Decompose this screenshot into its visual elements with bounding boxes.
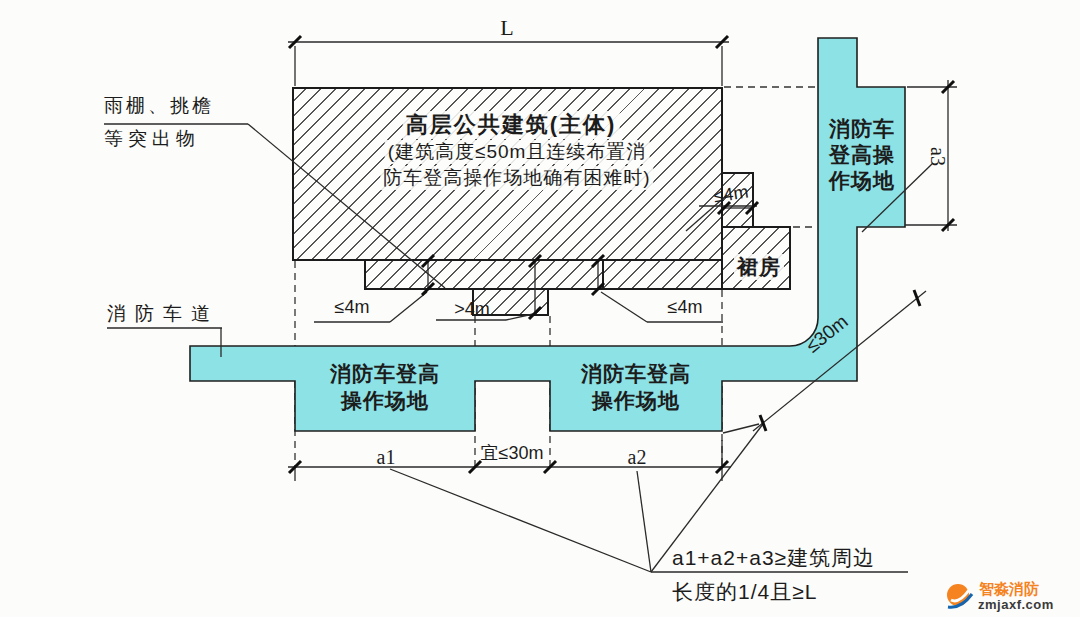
diagram: 雨棚、挑檐 等突出物 消防车道 高层公共建筑(主体) (建筑高度≤50m且连续布… bbox=[0, 0, 1080, 617]
watermark-logo-icon bbox=[945, 581, 975, 611]
west-pad1-label-line2: 操作场地 bbox=[341, 388, 429, 414]
formula-line2: 长度的1/4且≥L bbox=[672, 579, 817, 605]
canopy-protrusion-outline bbox=[365, 260, 603, 289]
building-note-line2: 防车登高操作场地确有困难时) bbox=[380, 166, 653, 190]
dim-canopy-right: ≤4m bbox=[668, 296, 703, 319]
west-pad2-label-line2: 操作场地 bbox=[592, 388, 680, 414]
formula-line1: a1+a2+a3≥建筑周边 bbox=[672, 545, 875, 571]
building-title: 高层公共建筑(主体) bbox=[403, 111, 620, 139]
east-pad-label-line2: 登高操 bbox=[829, 142, 895, 168]
podium-label: 裙房 bbox=[734, 254, 784, 280]
fire-lane-label: 消防车道 bbox=[107, 302, 219, 326]
dim-L: L bbox=[500, 14, 513, 42]
west-pad2-label-line1: 消防车登高 bbox=[581, 361, 691, 387]
lower-band-outline bbox=[603, 260, 722, 289]
east-pad-label-line1: 消防车 bbox=[829, 116, 895, 142]
dim-a1: a1 bbox=[377, 445, 396, 470]
watermark-site: zmjaxf.com bbox=[978, 597, 1054, 613]
fire-access-area bbox=[190, 38, 905, 431]
dim-canopy-left: ≤4m bbox=[335, 296, 370, 319]
east-pad-label-line3: 作场地 bbox=[829, 168, 895, 194]
protrusions-label-line1: 雨棚、挑檐 bbox=[104, 94, 214, 118]
dim-notch: >4m bbox=[454, 298, 490, 321]
building-note-line1: (建筑高度≤50m且连续布置消 bbox=[385, 140, 650, 164]
west-pad1-label-line1: 消防车登高 bbox=[330, 361, 440, 387]
dim-a3: a3 bbox=[925, 147, 950, 166]
dim-a2: a2 bbox=[628, 445, 647, 470]
watermark-brand: 智淼消防 bbox=[979, 580, 1039, 599]
dim-step: ≤4m bbox=[712, 181, 750, 208]
protrusions-label-line2: 等突出物 bbox=[104, 127, 200, 151]
dim-gap: 宜≤30m bbox=[481, 442, 544, 465]
